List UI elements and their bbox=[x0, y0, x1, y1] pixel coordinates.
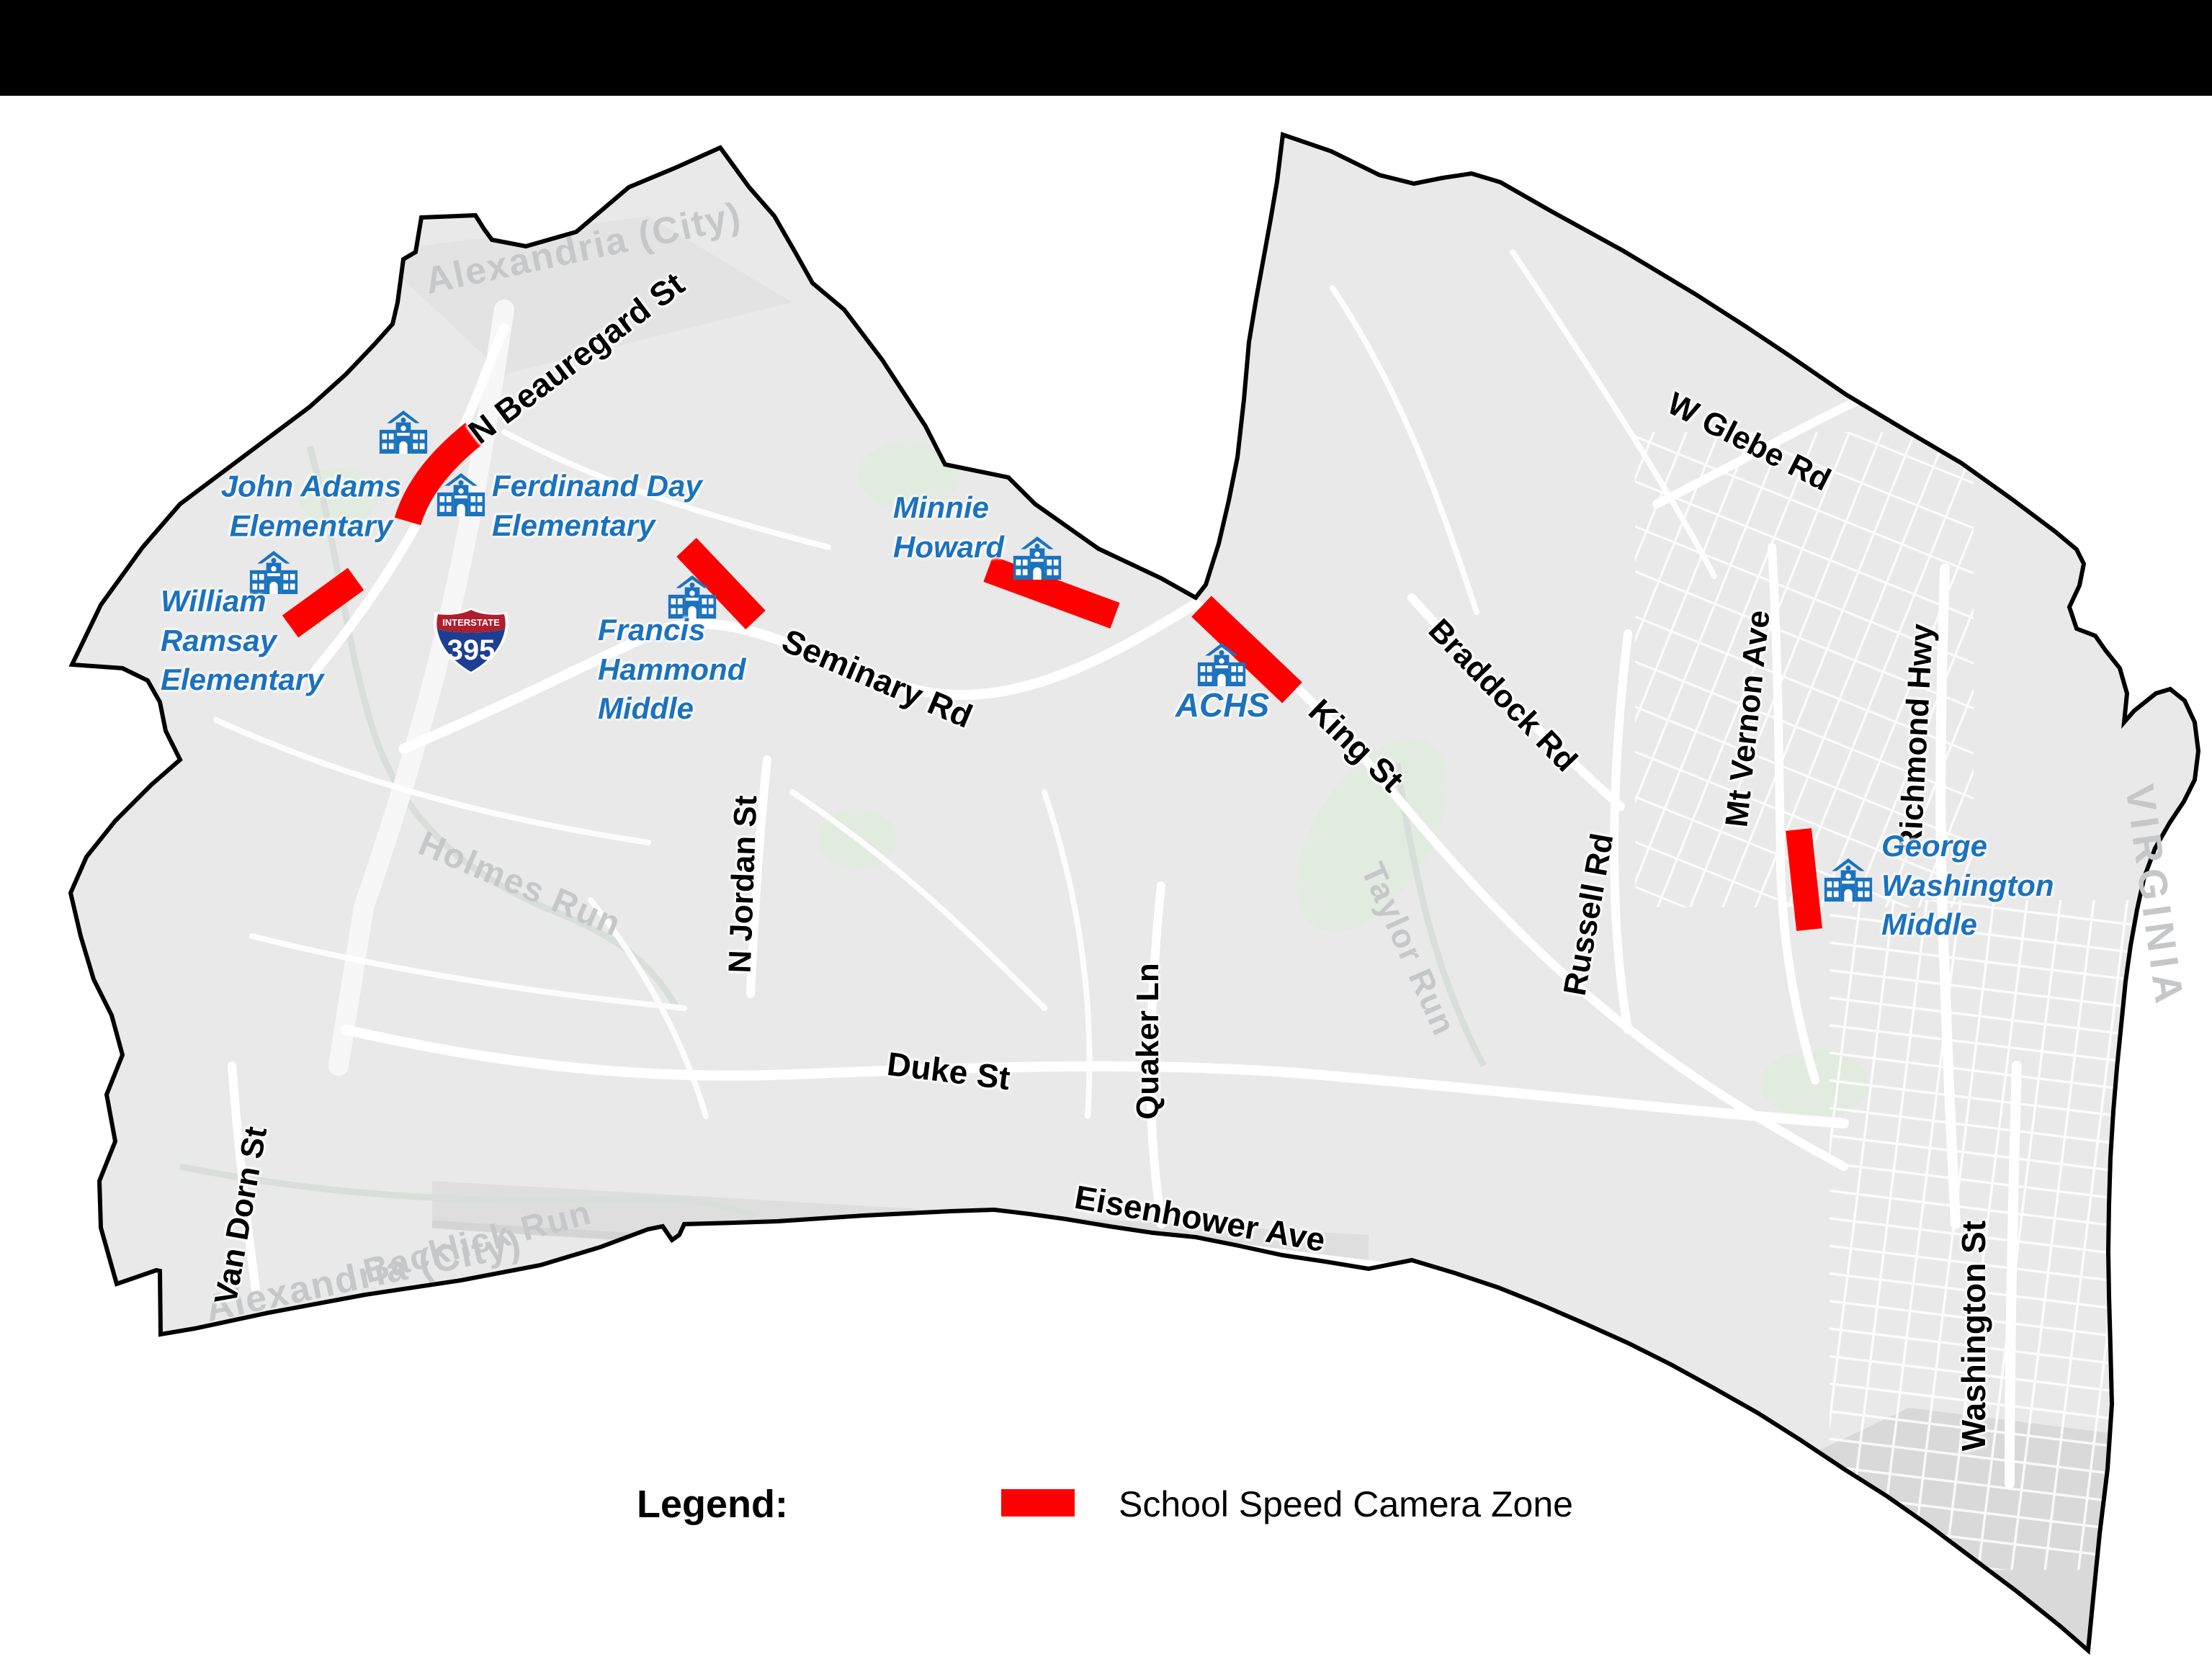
street-n-jordan: N Jordan St bbox=[722, 795, 765, 974]
camera-zone-george-washington bbox=[1799, 830, 1809, 930]
school-label-william-ramsay: William Ramsay Elementary bbox=[161, 582, 323, 700]
school-icon bbox=[1824, 858, 1873, 902]
city-map bbox=[0, 0, 2212, 1667]
school-label-francis-hammond: Francis Hammond Middle bbox=[598, 611, 745, 729]
school-icon bbox=[1013, 536, 1062, 580]
map-page: Alexandria (City) Alexandria (City) Holm… bbox=[0, 0, 2212, 1667]
school-icon bbox=[436, 473, 485, 516]
school-icon bbox=[379, 410, 428, 454]
school-label-john-adams: John Adams Elementary bbox=[221, 467, 401, 545]
school-label-achs: ACHS bbox=[1176, 684, 1269, 727]
legend: Legend: School Speed Camera Zone bbox=[0, 1469, 2212, 1534]
legend-camera-zone-label: School Speed Camera Zone bbox=[1119, 1483, 1573, 1525]
shield-number: 395 bbox=[447, 634, 496, 666]
school-icon bbox=[1197, 643, 1246, 686]
interstate-395-shield: INTERSTATE 395 bbox=[431, 606, 511, 675]
legend-title: Legend: bbox=[637, 1482, 788, 1527]
street-washington: Washington St bbox=[1954, 1221, 1993, 1451]
legend-camera-zone-swatch bbox=[1001, 1489, 1075, 1517]
school-label-minnie-howard: Minnie Howard bbox=[893, 488, 1004, 567]
shield-interstate-text: INTERSTATE bbox=[442, 617, 500, 628]
school-label-george-washington: George Washington Middle bbox=[1881, 827, 2054, 945]
street-quaker: Quaker Ln bbox=[1130, 963, 1166, 1120]
school-label-ferdinand-day: Ferdinand Day Elementary bbox=[492, 467, 702, 545]
